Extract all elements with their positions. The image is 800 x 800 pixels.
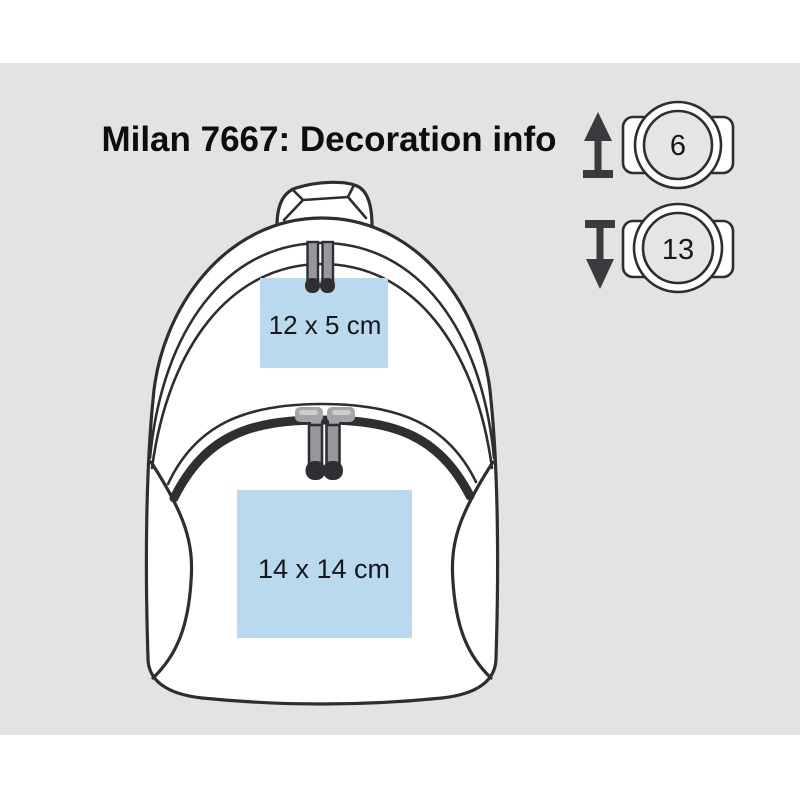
print-area-pocket-label: 14 x 14 cm: [258, 554, 390, 584]
arrow-up-stem: [595, 139, 602, 173]
zipper-pull-tip: [306, 461, 326, 480]
arrow-up-base: [583, 170, 613, 178]
zipper-slider-highlight: [299, 410, 318, 415]
decoration-info-page: Milan 7667: Decoration info 12 x 5 cm: [0, 0, 800, 800]
print-area-top-label: 12 x 5 cm: [269, 310, 382, 340]
zipper-pull-strap: [308, 242, 319, 282]
zipper-pull-tip: [305, 278, 320, 293]
zipper-slider-highlight: [332, 410, 351, 415]
page-title: Milan 7667: Decoration info: [101, 120, 556, 159]
zipper-pull-strap: [327, 425, 340, 467]
decoration-info-canvas: Milan 7667: Decoration info 12 x 5 cm: [0, 0, 800, 800]
print-area-pocket: 14 x 14 cm: [237, 490, 412, 638]
zipper-pull-tip: [320, 278, 335, 293]
arrow-down-stem: [597, 226, 604, 262]
zipper-pull-tip: [323, 461, 343, 480]
badge-value: 6: [670, 130, 686, 162]
zipper-pull-strap: [309, 425, 322, 467]
zipper-pull-strap: [323, 242, 334, 282]
badge-value: 13: [662, 234, 694, 266]
